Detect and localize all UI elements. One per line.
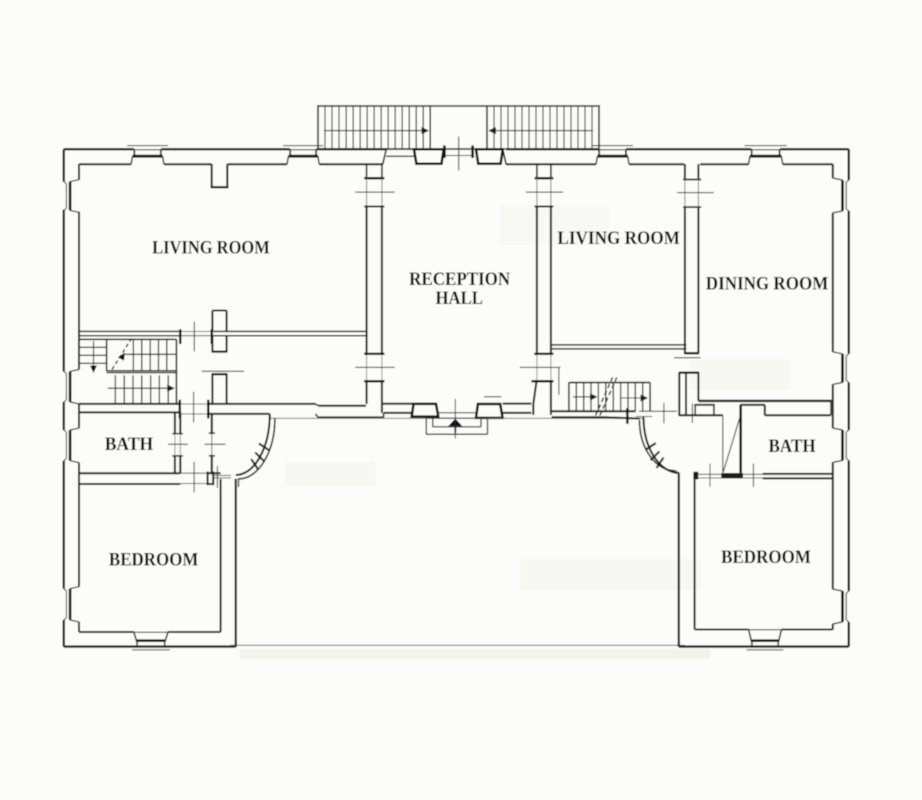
svg-text:BATH: BATH	[769, 437, 817, 457]
svg-text:DINING ROOM: DINING ROOM	[706, 275, 829, 295]
svg-text:BEDROOM: BEDROOM	[721, 548, 811, 568]
svg-text:RECEPTION: RECEPTION	[409, 270, 511, 290]
svg-text:HALL: HALL	[436, 289, 483, 309]
svg-text:LIVING ROOM: LIVING ROOM	[152, 238, 270, 258]
svg-text:LIVING ROOM: LIVING ROOM	[557, 229, 680, 249]
svg-text:BATH: BATH	[105, 435, 154, 455]
svg-text:BEDROOM: BEDROOM	[109, 550, 198, 570]
